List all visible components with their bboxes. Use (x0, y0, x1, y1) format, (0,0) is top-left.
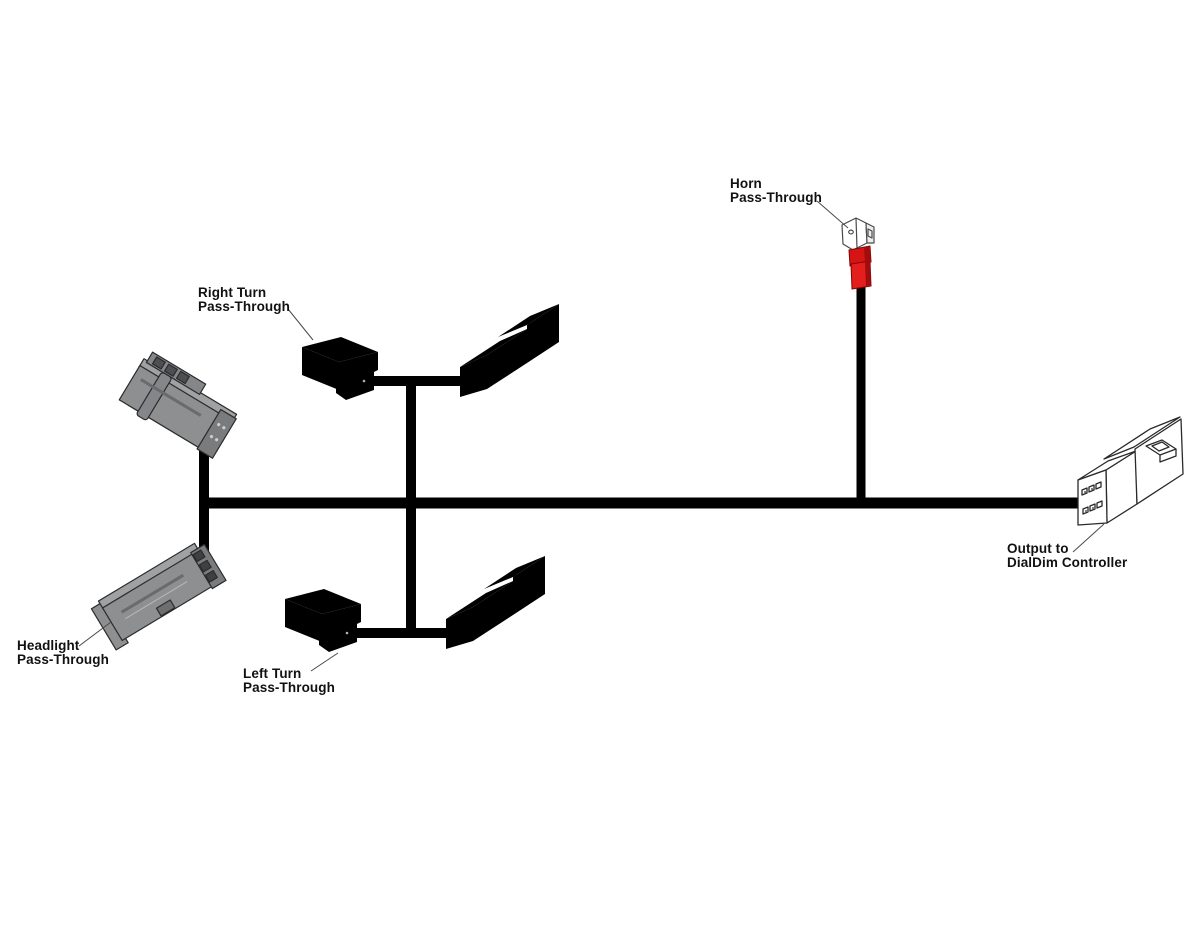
horn-red-insulator (849, 246, 871, 289)
left-turn-female-connector (285, 589, 361, 652)
label-left-turn-pass-through: Left Turn Pass-Through (243, 667, 335, 695)
label-line2: Pass-Through (243, 681, 335, 695)
label-line1: Right Turn (198, 286, 290, 300)
label-line2: Pass-Through (730, 191, 822, 205)
horn-terminal (842, 218, 874, 289)
horn-leader-line (817, 201, 848, 228)
harness-wires (203, 278, 1088, 637)
label-line1: Left Turn (243, 667, 335, 681)
label-line1: Headlight (17, 639, 109, 653)
label-headlight-pass-through: Headlight Pass-Through (17, 639, 109, 667)
label-line2: DialDim Controller (1007, 556, 1127, 570)
label-horn-pass-through: Horn Pass-Through (730, 177, 822, 205)
harness-artwork (0, 0, 1200, 938)
headlight-connector-upper (117, 350, 243, 460)
label-line1: Output to (1007, 542, 1127, 556)
headlight-connector-lower (90, 539, 228, 650)
label-line2: Pass-Through (17, 653, 109, 667)
label-right-turn-pass-through: Right Turn Pass-Through (198, 286, 290, 314)
wiring-diagram: Horn Pass-Through Right Turn Pass-Throug… (0, 0, 1200, 938)
label-output-dialdim: Output to DialDim Controller (1007, 542, 1127, 570)
label-line2: Pass-Through (198, 300, 290, 314)
horn-spade-connector (842, 218, 874, 250)
right-turn-leader-line (288, 309, 313, 340)
leader-lines (79, 201, 1104, 671)
dialdim-output-connector (1078, 417, 1183, 525)
left-turn-male-connector (446, 556, 545, 649)
label-line1: Horn (730, 177, 822, 191)
right-turn-male-connector (460, 304, 559, 397)
right-turn-female-connector (302, 337, 378, 400)
